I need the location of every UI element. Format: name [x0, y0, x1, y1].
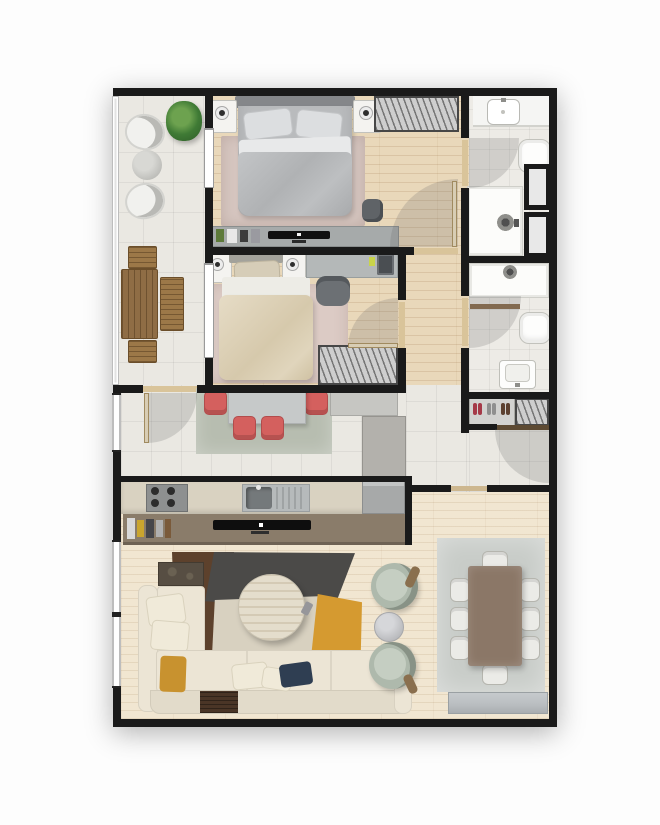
tray-table — [200, 691, 238, 713]
dining-chair — [482, 664, 508, 685]
dining-chair — [520, 636, 540, 660]
shoe — [473, 403, 477, 415]
hallway-floor — [398, 247, 469, 390]
tv-light — [297, 233, 301, 236]
door-threshold — [462, 140, 468, 186]
tv-light — [259, 523, 263, 527]
desk-chair — [316, 276, 350, 306]
table-lamp — [287, 259, 298, 270]
floor-plan — [0, 0, 660, 825]
faucet — [501, 98, 506, 102]
shoe — [487, 403, 491, 415]
wall-top — [113, 88, 557, 96]
refrigerator — [362, 479, 405, 514]
armchair-seat — [374, 648, 406, 680]
coral-chair — [261, 416, 284, 440]
wooden-table — [121, 269, 158, 339]
wardrobe — [318, 345, 398, 385]
wall-bedroom2-bottom — [205, 385, 406, 393]
coffee-table — [238, 574, 305, 641]
jar — [137, 520, 144, 537]
door-threshold — [399, 302, 405, 348]
potted-plant — [166, 101, 202, 141]
burner — [167, 499, 175, 507]
entrance-door-leaf — [497, 425, 549, 430]
sliding-door — [204, 128, 214, 188]
sink-basin — [246, 487, 272, 509]
dining-chair — [450, 607, 470, 631]
desk-decor — [369, 257, 375, 266]
tv-stand — [251, 531, 269, 534]
wall-bathroom — [461, 188, 469, 296]
jar — [165, 519, 171, 538]
round-side-table — [132, 150, 162, 180]
jar — [156, 520, 163, 537]
window-post — [112, 612, 121, 617]
sofa-seam — [330, 651, 332, 691]
sofa-backrest — [150, 690, 412, 714]
shoe — [478, 403, 482, 415]
tall-cabinet — [362, 416, 406, 477]
dresser-decor — [227, 229, 237, 243]
coral-chair — [305, 391, 328, 415]
wall-bathroom2-bottom — [461, 392, 549, 399]
wall-right — [549, 88, 557, 727]
duvet — [238, 152, 352, 216]
coat-rack — [515, 398, 549, 426]
balcony-railing — [112, 96, 119, 385]
faucet — [256, 485, 261, 490]
faucet — [515, 383, 520, 387]
wall-entry — [487, 485, 549, 492]
pillow — [242, 107, 293, 141]
door-leaf — [348, 343, 398, 348]
wall-bathroom-mid — [461, 256, 549, 263]
side-table — [374, 612, 404, 642]
tv-stand — [292, 240, 306, 243]
wall-balcony — [205, 96, 213, 128]
burner — [151, 499, 159, 507]
toilet — [519, 312, 551, 344]
service-shaft — [524, 164, 551, 210]
door-threshold — [462, 298, 468, 346]
duvet — [219, 295, 313, 380]
wall-shoe-stub — [461, 424, 497, 430]
shower-valve — [514, 219, 519, 227]
sliding-window — [204, 263, 214, 358]
shower-drain — [503, 265, 517, 279]
dresser-decor — [240, 230, 248, 242]
entry-floor — [406, 385, 469, 492]
coral-chair — [204, 391, 227, 415]
jar — [146, 519, 154, 538]
dining-table — [468, 566, 522, 666]
wardrobe — [374, 96, 459, 132]
wall-bathroom — [461, 348, 469, 433]
drain — [501, 110, 505, 114]
dining-chair — [450, 636, 470, 660]
washbasin-bowl — [505, 364, 530, 382]
coral-chair — [233, 416, 256, 440]
jar — [127, 518, 135, 539]
service-shaft — [524, 212, 551, 258]
dining-chair — [520, 607, 540, 631]
cushion-navy — [279, 661, 314, 688]
burner — [151, 487, 159, 495]
sideboard — [448, 692, 548, 714]
bench — [160, 277, 184, 331]
table-lamp — [216, 107, 228, 119]
table-lamp — [360, 107, 372, 119]
laptop — [377, 254, 394, 275]
shoe — [492, 403, 496, 415]
dresser-decor — [216, 229, 224, 242]
wall-kitchen-right — [405, 476, 412, 545]
sofa-cushion — [150, 619, 190, 652]
dining-chair — [520, 578, 540, 602]
burner — [167, 487, 175, 495]
wall-balcony-bottom — [113, 385, 143, 393]
window — [112, 393, 121, 452]
bench — [128, 246, 157, 269]
door-threshold — [143, 386, 197, 392]
bench — [128, 340, 157, 363]
threshold-entry — [451, 486, 487, 491]
dining-chair — [450, 578, 470, 602]
wall-bedroom-divider — [205, 247, 414, 255]
cushion-mustard — [159, 656, 186, 693]
wall-bathroom — [461, 96, 469, 138]
wall-bottom — [113, 719, 557, 727]
wall-kitchen-back — [121, 476, 405, 482]
door-leaf — [452, 181, 457, 247]
shoe — [506, 403, 510, 415]
pouf — [362, 199, 383, 222]
wall-bedroom2-right — [398, 247, 406, 300]
dark-console — [158, 562, 204, 586]
drainboard — [276, 487, 306, 509]
shoe — [501, 403, 505, 415]
door-threshold — [414, 248, 458, 254]
armchair-seat — [376, 569, 408, 601]
door-leaf — [144, 393, 149, 443]
dresser-decor — [251, 229, 260, 243]
wall-entry — [412, 485, 451, 492]
shower-drain — [497, 214, 514, 231]
